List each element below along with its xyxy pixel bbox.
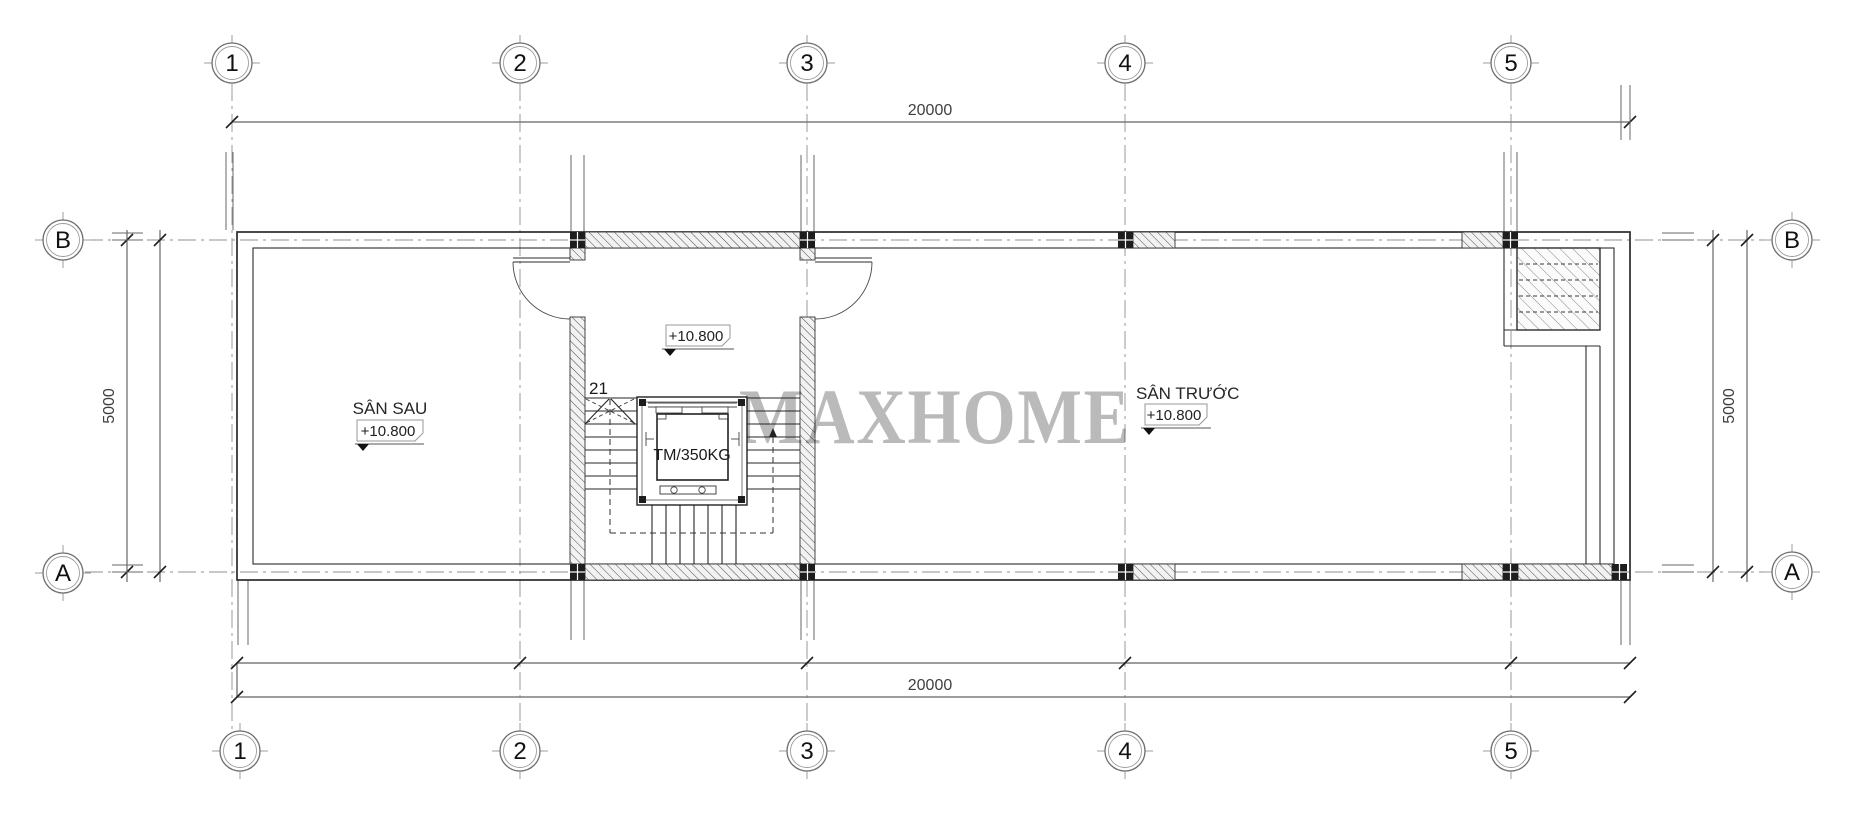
back-yard-name: SÂN SAU [353,399,428,418]
grid-bubble-A-right: A [1784,559,1800,586]
front-yard-name: SÂN TRƯỚC [1136,384,1239,403]
elevator-label: TM/350KG [653,447,730,464]
elevator-counterweight [660,486,716,494]
grid-bubble-B-left: B [55,227,71,254]
dim-top-total: 20000 [908,102,953,119]
grid-bubble-2-bottom: 2 [513,738,526,765]
dim-right-depth: 5000 [1721,388,1738,424]
back-yard-level: +10.800 [361,423,416,440]
grid-bubble-5-bottom: 5 [1504,738,1517,765]
grid-bubble-5-top: 5 [1504,50,1517,77]
grid-bubble-3-bottom: 3 [800,738,813,765]
front-yard-level: +10.800 [1147,407,1202,424]
grid-bubble-4-top: 4 [1118,50,1131,77]
grating-panel [1517,248,1600,330]
floor-plan-page: 20000 20000 5000 [0,0,1854,827]
hall-level: +10.800 [669,328,724,345]
elevator: TM/350KG [637,397,747,505]
dim-left-depth: 5000 [101,388,118,424]
grid-bubble-A-left: A [55,560,71,587]
grid-bubble-4-bottom: 4 [1118,738,1131,765]
grid-bubble-1-bottom: 1 [233,738,246,765]
stair-step-number: 21 [589,379,608,398]
grid-bubble-2-top: 2 [513,50,526,77]
grid-bubble-3-top: 3 [800,50,813,77]
floor-plan-drawing: 20000 20000 5000 [0,0,1854,827]
watermark: MAXHOME [739,373,1131,460]
grid-bubble-B-right: B [1784,227,1800,254]
dim-bottom-total: 20000 [908,677,953,694]
grid-bubble-1-top: 1 [225,50,238,77]
